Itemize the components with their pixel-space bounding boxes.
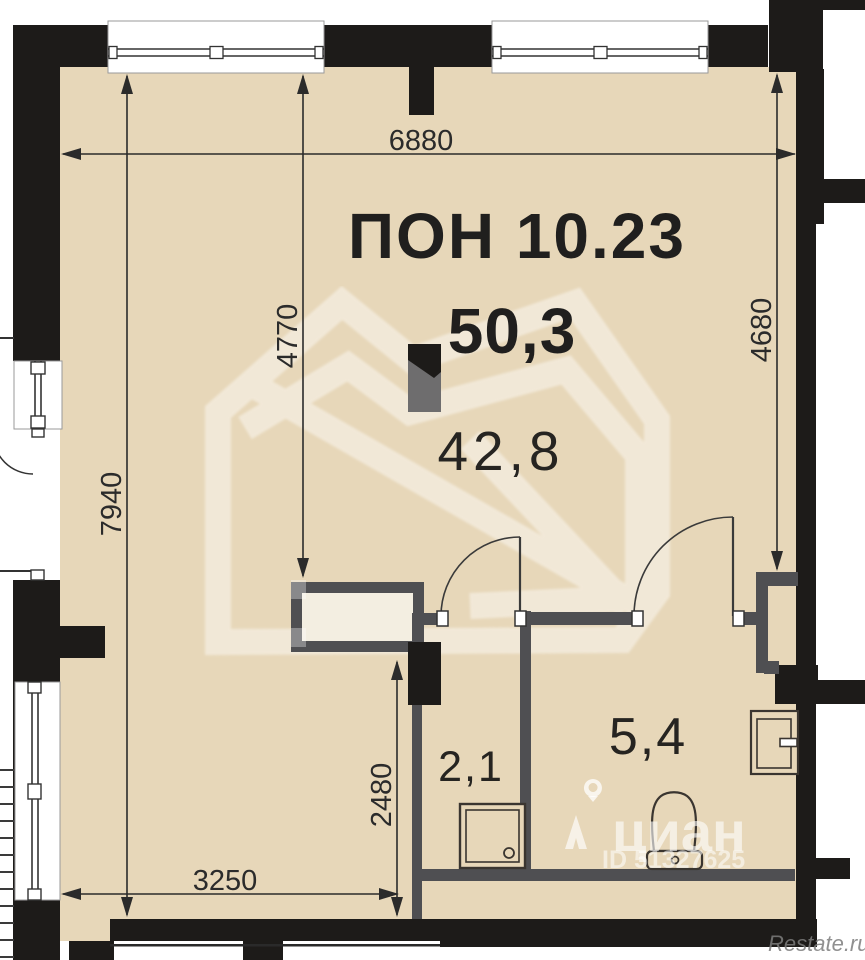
svg-text:4680: 4680 — [746, 298, 778, 363]
svg-text:ПОН 10.23: ПОН 10.23 — [348, 200, 686, 272]
svg-text:50,3: 50,3 — [448, 295, 577, 367]
svg-text:ID 51327625: ID 51327625 — [602, 846, 745, 874]
svg-text:5,4: 5,4 — [609, 708, 687, 766]
svg-text:6880: 6880 — [389, 125, 454, 157]
svg-text:2480: 2480 — [366, 763, 398, 828]
svg-text:42,8: 42,8 — [437, 420, 564, 482]
svg-text:7940: 7940 — [96, 472, 128, 537]
svg-text:Restate.ru: Restate.ru — [768, 931, 865, 956]
svg-text:3250: 3250 — [193, 865, 258, 897]
svg-text:4770: 4770 — [272, 304, 304, 369]
svg-text:2,1: 2,1 — [438, 743, 504, 791]
